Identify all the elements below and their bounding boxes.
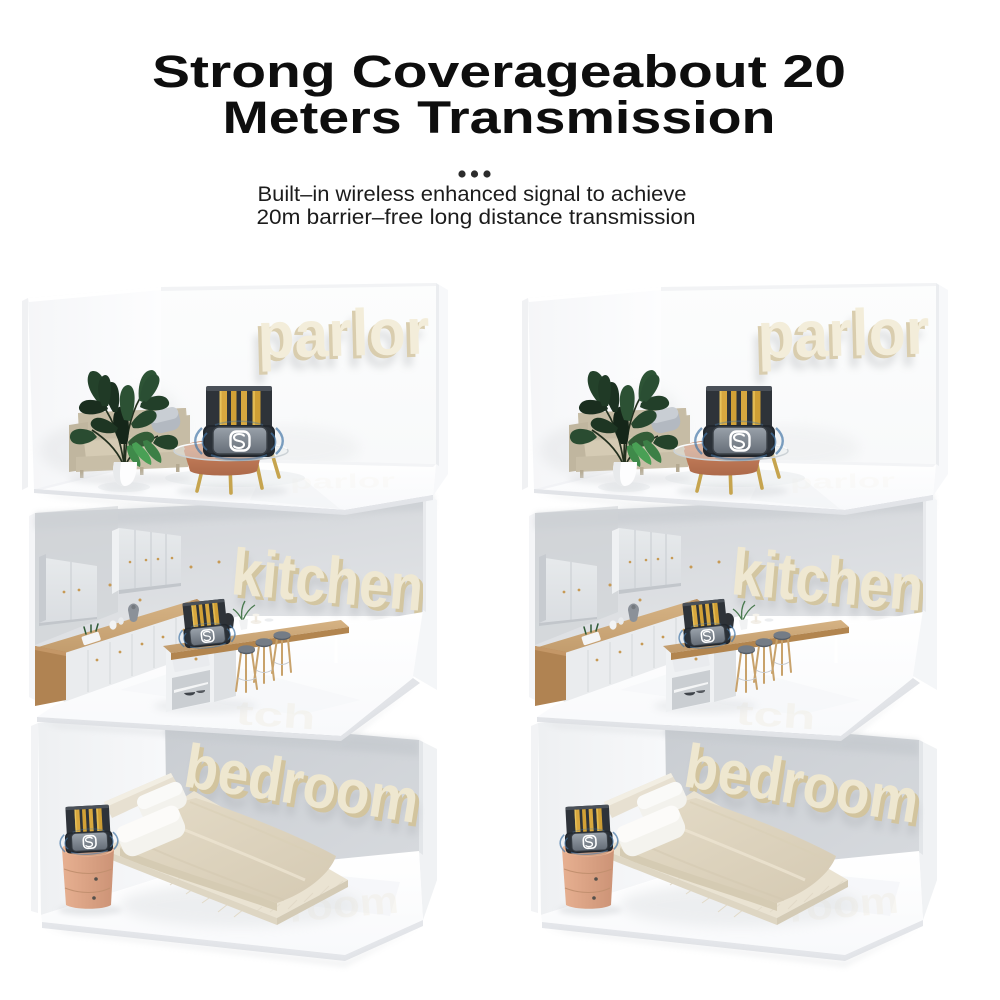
svg-text:tch: tch [734, 694, 816, 737]
svg-text:parlor: parlor [256, 294, 430, 372]
svg-text:parlor: parlor [790, 470, 896, 494]
svg-text:Meters Transmission: Meters Transmission [223, 92, 776, 143]
svg-text:parlor: parlor [756, 294, 930, 372]
svg-text:parlor: parlor [290, 470, 396, 494]
svg-text:Strong Coverageabout 20: Strong Coverageabout 20 [152, 46, 846, 97]
svg-text:20m barrier–free long distance: 20m barrier–free long distance transmiss… [257, 206, 696, 229]
svg-text:tch: tch [234, 694, 316, 737]
svg-text:Built–in wireless enhanced sig: Built–in wireless enhanced signal to ach… [258, 183, 687, 206]
